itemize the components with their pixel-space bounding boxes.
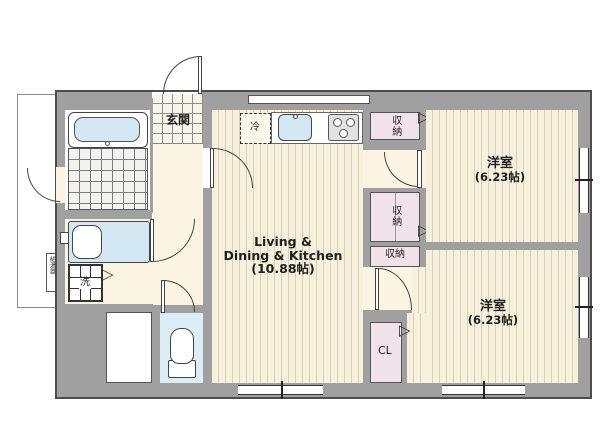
sink-faucet <box>293 114 298 119</box>
ldk-label-line1: Living & <box>213 235 353 249</box>
window-tick <box>281 381 283 399</box>
storage-mid-label: 収納 <box>389 205 400 227</box>
fold-door-icon: ▷ <box>399 323 411 338</box>
vanity-bowl <box>72 225 102 259</box>
burner <box>333 118 342 127</box>
storage-top: 収納 <box>370 112 420 140</box>
washer-pan: 洗 <box>68 264 103 302</box>
window-tick <box>483 381 485 399</box>
bedroom2-name: 洋室 <box>433 300 553 314</box>
wall <box>203 188 212 383</box>
closet-cl-label: CL <box>378 345 392 357</box>
wall <box>152 305 160 385</box>
entrance-label: 玄関 <box>158 114 198 127</box>
fridge-space: 冷 <box>240 113 271 144</box>
fridge-label: 冷 <box>250 123 260 134</box>
wall <box>420 242 590 250</box>
bedroom2-nook-floor <box>412 267 426 313</box>
ldk-label: Living & Dining & Kitchen (10.88帖) <box>213 235 353 276</box>
storage-top-label: 収納 <box>389 115 400 137</box>
vanity-unit <box>68 221 150 263</box>
bedroom1-label: 洋室 (6.23帖) <box>440 157 560 183</box>
wall <box>57 92 65 167</box>
kitchen-window <box>248 95 370 104</box>
meter-box <box>106 312 152 383</box>
storage-small-label: 収納 <box>385 250 405 261</box>
bath-drain <box>105 141 110 146</box>
bathtub-unit <box>68 112 148 148</box>
burner <box>339 129 348 138</box>
vanity-tap <box>60 232 69 244</box>
bathroom-floor <box>68 148 148 210</box>
burner <box>346 118 355 127</box>
ldk-label-line2: Dining & Kitchen <box>213 249 353 263</box>
window-tick <box>575 306 593 308</box>
storage-mid: 収納 <box>370 192 420 242</box>
water-heater-label: 給湯器 <box>48 256 54 274</box>
ldk-label-line3: (10.88帖) <box>213 262 353 276</box>
bathtub <box>74 117 140 142</box>
fold-door-icon: ▷ <box>102 267 114 282</box>
entrance-door-swing <box>163 56 201 94</box>
toilet-bowl <box>170 328 194 364</box>
bedroom1-door-leaf <box>417 150 422 188</box>
wall <box>57 210 152 219</box>
washer-label: 洗 <box>79 278 91 289</box>
bedroom2-label: 洋室 (6.23帖) <box>433 300 553 326</box>
wall <box>203 98 212 148</box>
floor-plan: 給湯器 洗 ▷ <box>0 0 600 439</box>
bedroom1-name: 洋室 <box>440 157 560 171</box>
stove <box>328 114 359 141</box>
window-tick <box>575 179 593 181</box>
bedroom2-size: (6.23帖) <box>433 314 553 326</box>
closet-cl: CL <box>370 322 402 383</box>
bedroom1-size: (6.23帖) <box>440 171 560 183</box>
wall <box>57 92 152 110</box>
